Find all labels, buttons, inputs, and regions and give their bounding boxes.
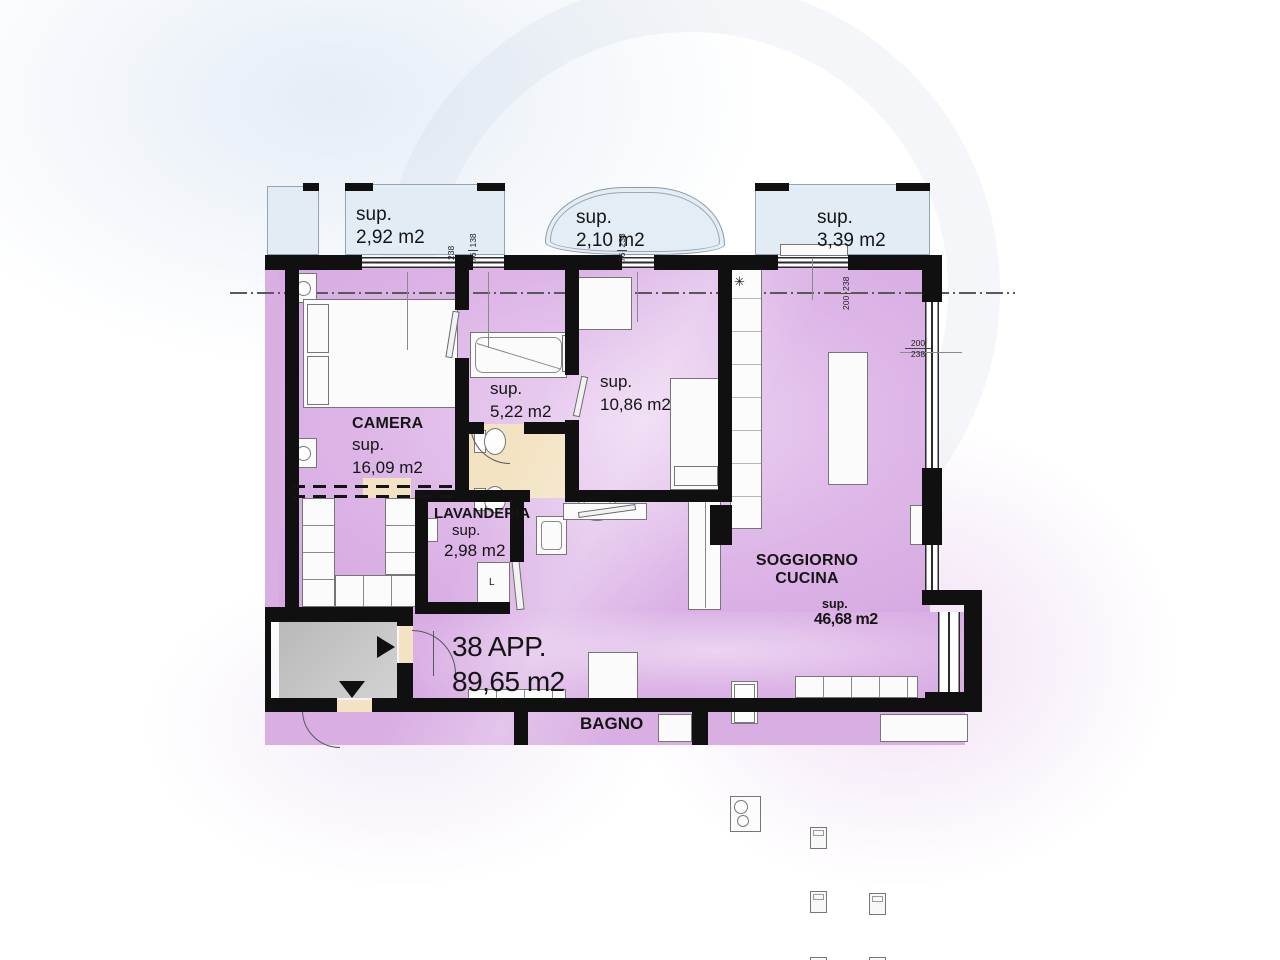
room-name: BAGNO — [580, 714, 643, 733]
dim-value: 138 — [468, 233, 478, 247]
window-dimension: 238 — [446, 246, 456, 260]
wall — [570, 490, 732, 502]
sup-label: sup. — [452, 522, 530, 540]
dim-value: 76 — [617, 253, 627, 262]
balcony-pillar — [477, 183, 505, 191]
wall — [415, 498, 428, 608]
door — [880, 714, 968, 742]
floor-plan: ✳ — [0, 0, 1280, 960]
desk — [573, 277, 632, 330]
balcony-2-label: sup. 2,10 m2 — [576, 206, 645, 252]
wall — [397, 607, 413, 626]
window — [925, 302, 939, 468]
neighbor-floor-strip — [265, 262, 279, 612]
wall — [372, 698, 925, 712]
sup-label: sup. — [817, 206, 886, 229]
entrance-door-opening — [399, 626, 413, 663]
dim-value: 238 — [905, 349, 931, 359]
pillow — [307, 304, 329, 353]
balcony-pillar — [345, 183, 373, 191]
wall — [265, 255, 362, 270]
arrow-down-icon — [339, 681, 365, 698]
area-value: 3,39 m2 — [817, 229, 886, 252]
dim-separator — [841, 293, 851, 294]
soggiorno-area-label: sup. 46,68 m2 — [814, 597, 878, 629]
wall — [415, 602, 510, 614]
lavanderia-label: LAVANDERIA sup. 2,98 m2 — [434, 505, 530, 562]
wall — [285, 255, 299, 622]
window-dimension: 200 238 — [841, 277, 851, 310]
console-table — [563, 503, 647, 520]
apartment-area: 89,65 m2 — [452, 664, 565, 699]
area-value: 46,68 m2 — [814, 611, 878, 629]
wall — [964, 605, 982, 712]
window-dimension: 76 138 — [468, 233, 478, 262]
wall — [922, 468, 942, 545]
wall — [455, 422, 484, 434]
dining-table — [828, 352, 868, 485]
window-dimension: 200 238 — [905, 338, 931, 359]
dim-separator — [468, 250, 478, 251]
wall — [514, 712, 528, 745]
console-decor — [578, 504, 636, 518]
balcony-1-label: sup. 2,92 m2 — [356, 203, 425, 249]
wall — [654, 255, 778, 270]
wall — [922, 590, 982, 605]
apartment-number: 38 APP. — [452, 629, 565, 664]
wall — [922, 255, 942, 302]
washer-letter: L — [489, 577, 495, 588]
room-name: LAVANDERIA — [434, 505, 530, 522]
dim-line — [488, 272, 489, 348]
wall — [565, 262, 579, 375]
window — [362, 257, 455, 268]
sup-label: sup. — [352, 433, 423, 456]
wall — [692, 712, 708, 745]
door — [658, 714, 692, 742]
sup-label: sup. — [356, 203, 425, 226]
dim-value: 238 — [446, 246, 456, 260]
dim-value: 200 — [905, 338, 931, 349]
pillow — [674, 466, 718, 486]
pillow — [307, 356, 329, 405]
wall — [265, 698, 337, 712]
window — [778, 257, 848, 268]
dashed-wall — [292, 485, 452, 488]
wall — [455, 262, 469, 310]
camera-label: CAMERA sup. 16,09 m2 — [352, 415, 423, 479]
dashed-wall — [292, 495, 452, 498]
entrance-door-leaf — [433, 631, 434, 676]
stair-landing-floor — [279, 622, 397, 698]
dim-line — [812, 258, 813, 300]
wall — [718, 262, 732, 502]
room-name: CAMERA — [352, 415, 423, 433]
area-value: 2,10 m2 — [576, 229, 645, 252]
wardrobe — [385, 498, 418, 575]
bagno-inferiore-label: BAGNO — [580, 714, 643, 734]
dim-line — [637, 272, 638, 322]
wardrobe — [302, 498, 335, 607]
fridge-icon: ✳ — [734, 274, 745, 290]
sup-label: sup. — [576, 206, 645, 229]
room-name: SOGGIORNO — [755, 552, 859, 570]
dim-line — [407, 272, 408, 350]
soggiorno-label: SOGGIORNO CUCINA — [755, 552, 859, 588]
area-value: 5,22 m2 — [490, 400, 551, 423]
bagno-label: sup. 5,22 m2 — [490, 377, 551, 423]
wardrobe — [335, 575, 418, 607]
area-value: 2,92 m2 — [356, 226, 425, 249]
balcony-3-label: sup. 3,39 m2 — [817, 206, 886, 252]
wall — [265, 607, 405, 622]
sideboard — [795, 676, 918, 698]
room-name: CUCINA — [755, 570, 859, 588]
bathtub — [470, 332, 567, 378]
lower-door-opening — [337, 700, 372, 712]
window — [925, 545, 939, 590]
window — [938, 612, 960, 692]
side-table — [588, 652, 638, 699]
wall — [710, 505, 732, 545]
sup-label: sup. — [600, 370, 671, 393]
dim-value: 200 — [841, 296, 851, 310]
sup-label: sup. — [822, 597, 878, 611]
dim-value: 238 — [841, 277, 851, 291]
kitchen-counter — [730, 265, 762, 529]
area-value: 2,98 m2 — [444, 540, 530, 562]
apartment-label: 38 APP. 89,65 m2 — [452, 629, 565, 699]
area-value: 16,09 m2 — [352, 456, 423, 479]
balcony-pillar — [303, 183, 319, 191]
dim-value: 76 — [468, 253, 478, 262]
dining-chair — [810, 827, 827, 849]
balcony-pillar — [755, 183, 789, 191]
area-value: 10,86 m2 — [600, 393, 671, 416]
kitchen-sink — [730, 796, 761, 832]
cameretta-label: sup. 10,86 m2 — [600, 370, 671, 416]
arrow-right-icon — [377, 636, 395, 658]
wall — [504, 255, 622, 270]
bathroom-sink — [536, 516, 567, 555]
washer-label: L — [489, 577, 495, 588]
balcony-partial — [267, 186, 319, 255]
dining-chair — [810, 891, 827, 913]
dining-chair — [869, 893, 886, 915]
balcony-pillar — [896, 183, 930, 191]
sup-label: sup. — [490, 377, 551, 400]
